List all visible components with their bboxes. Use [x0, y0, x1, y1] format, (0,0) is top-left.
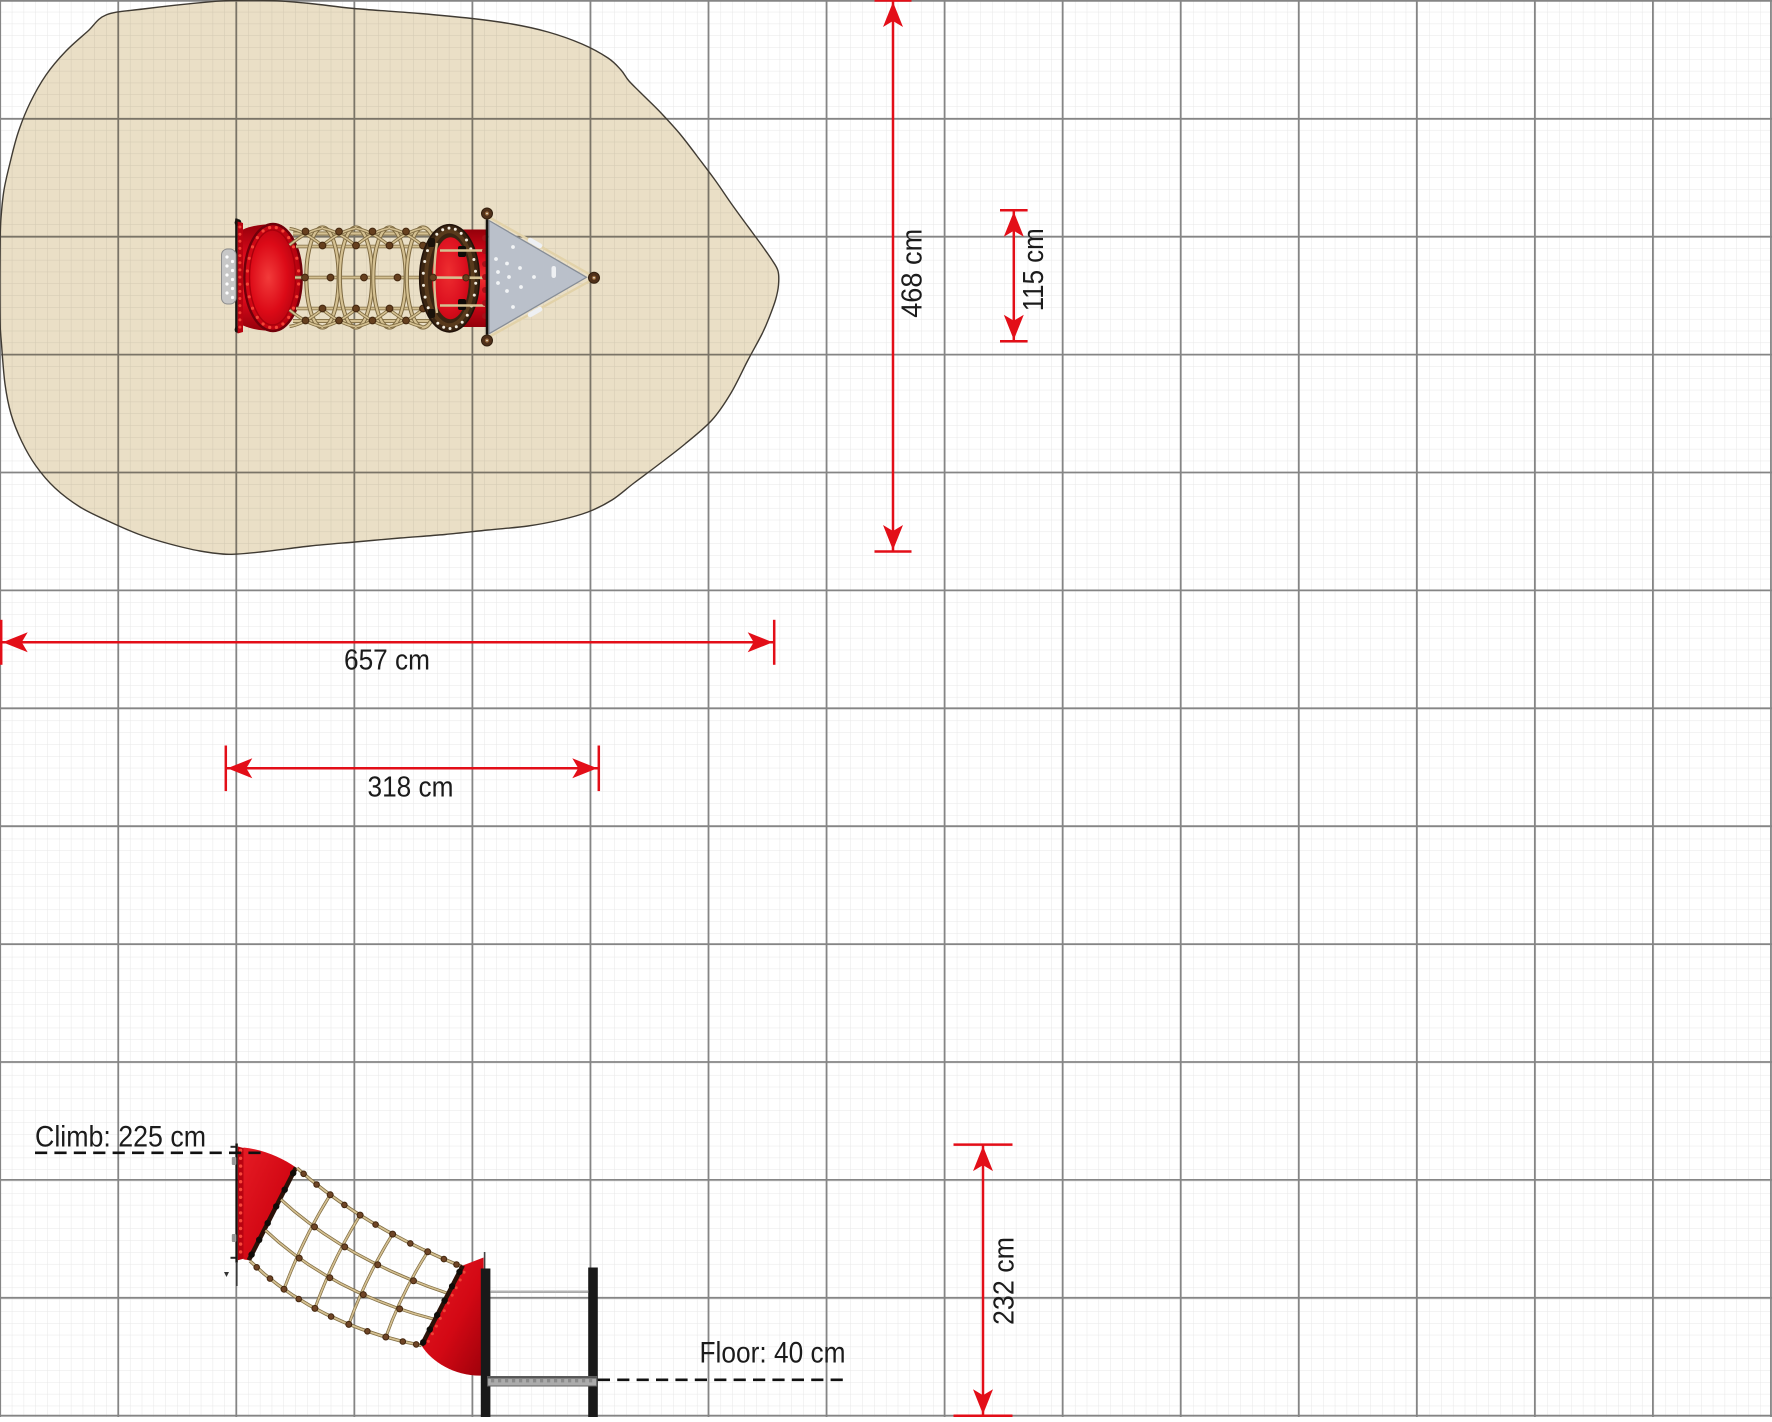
- svg-text:468 cm: 468 cm: [897, 229, 929, 318]
- svg-text:Floor: 40 cm: Floor: 40 cm: [700, 1337, 846, 1370]
- svg-text:318 cm: 318 cm: [368, 772, 454, 804]
- svg-text:115 cm: 115 cm: [1018, 228, 1050, 311]
- svg-text:232 cm: 232 cm: [989, 1237, 1021, 1325]
- svg-text:657 cm: 657 cm: [344, 645, 430, 677]
- svg-text:Climb: 225 cm: Climb: 225 cm: [35, 1121, 206, 1154]
